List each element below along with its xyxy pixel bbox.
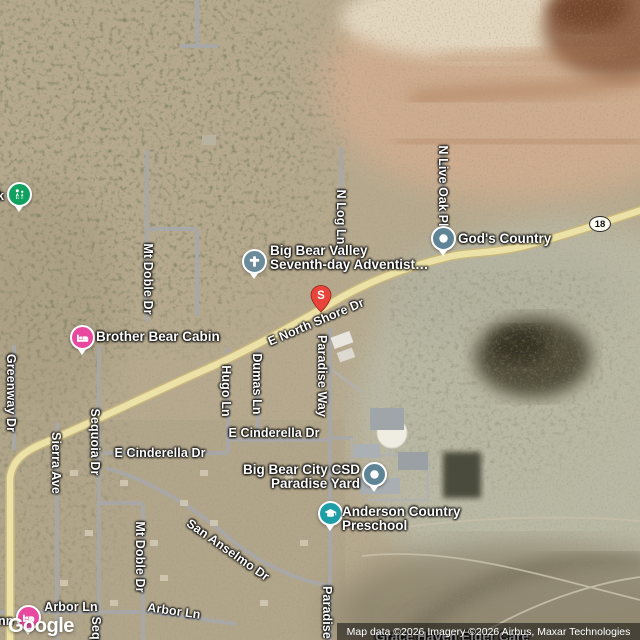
poi-label-brother-bear-cabin[interactable]: Brother Bear Cabin (96, 330, 220, 344)
road-label-paradise-way: Paradise Way (315, 335, 329, 417)
road-label-hugo-ln: Hugo Ln (219, 365, 233, 416)
school-icon[interactable] (318, 501, 343, 526)
road-label-e-cinderella-dr-west: E Cinderella Dr (114, 446, 205, 460)
search-result-pin[interactable]: S (309, 284, 333, 314)
road-label-dumas-ln: Dumas Ln (250, 353, 264, 414)
road-label-sequoia-dr: Sequoia Dr (88, 409, 102, 476)
road-label-e-cinderella-dr-east: E Cinderella Dr (228, 426, 319, 440)
poi-label-gods-country[interactable]: God's Country (458, 232, 551, 246)
road-label-mt-doble-dr-north: Mt Doble Dr (141, 243, 155, 314)
map-canvas[interactable]: Mt Doble Dr N Log Ln N Live Oak Pl E Nor… (0, 0, 640, 640)
road-label-arbor-ln-west: Arbor Ln (44, 600, 98, 614)
road-label-n-log-ln: N Log Ln (334, 190, 348, 245)
road-label-partial-k: k (0, 189, 4, 203)
road-label-sierra-ave: Sierra Ave (49, 432, 63, 494)
route-18-shield: 18 (589, 216, 611, 232)
poi-label-csd-paradise-yard[interactable]: Big Bear City CSD Paradise Yard (220, 463, 360, 491)
google-logo[interactable]: Google (8, 615, 74, 638)
pin-letter: S (317, 290, 325, 302)
poi-label-big-bear-valley-adventist[interactable]: Big Bear Valley Seventh-day Adventist… (270, 244, 429, 272)
road-label-greenway-dr: Greenway Dr (4, 354, 18, 432)
road-label-sequoia-dr-south: Sequoia Dr (89, 617, 103, 640)
road-label-n-live-oak-pl: N Live Oak Pl (436, 145, 450, 226)
church-icon[interactable] (242, 249, 267, 274)
route-18-number: 18 (595, 219, 606, 230)
hiking-icon[interactable] (7, 182, 32, 207)
road-label-paradise-way-south: Paradise Way (320, 586, 334, 640)
lodging-icon[interactable] (70, 325, 95, 350)
map-attribution[interactable]: Map data ©2026 Imagery ©2026 Airbus, Max… (337, 623, 640, 640)
poi-label-anderson-preschool[interactable]: Anderson Country Preschool (342, 505, 461, 533)
road-label-mt-doble-dr-south: Mt Doble Dr (133, 521, 147, 592)
poi-dot-icon[interactable] (431, 226, 456, 251)
poi-dot-icon[interactable] (362, 462, 387, 487)
